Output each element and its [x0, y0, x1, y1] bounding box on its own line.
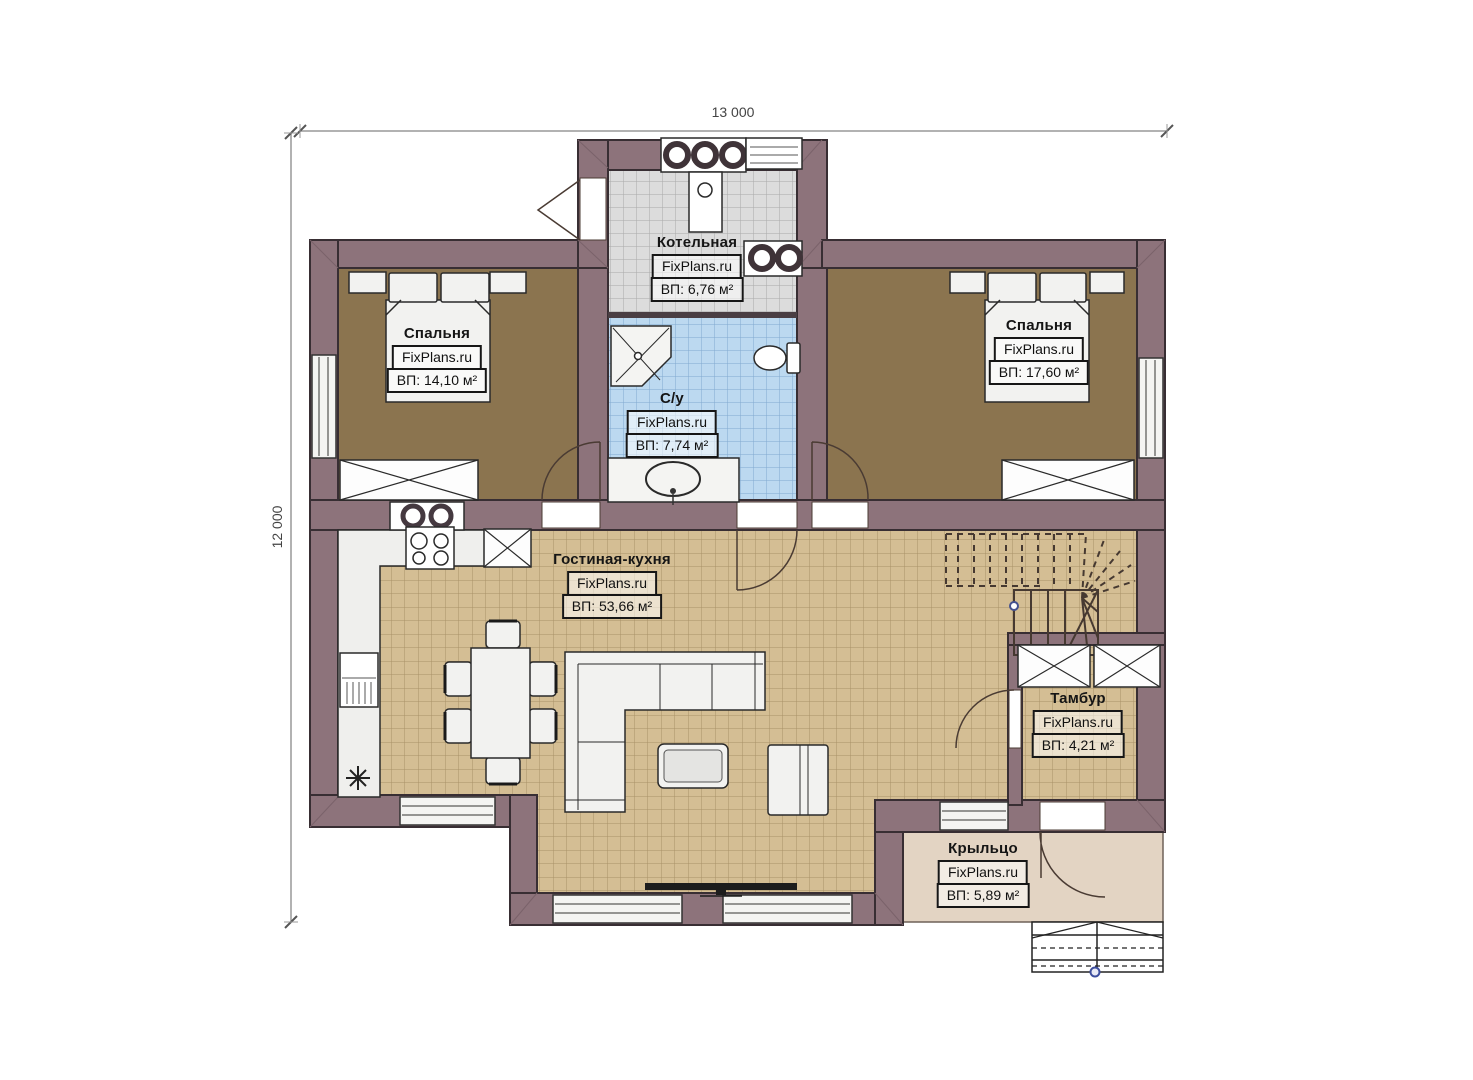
nightstand: [1090, 272, 1124, 293]
sink: [390, 502, 464, 530]
room-area: ВП: 53,66 м²: [562, 594, 662, 619]
room-name: Спальня: [404, 325, 470, 342]
nightstand: [950, 272, 985, 293]
room-area: ВП: 5,89 м²: [937, 883, 1030, 908]
room-name: Котельная: [657, 234, 737, 251]
room-name: Спальня: [1006, 317, 1072, 334]
room-area: ВП: 14,10 м²: [387, 368, 487, 393]
window-living-left: [553, 895, 682, 923]
brand-badge: FixPlans.ru: [392, 345, 482, 370]
room-label-porch: Крыльцо FixPlans.ru ВП: 5,89 м²: [937, 840, 1030, 908]
chair: [445, 662, 472, 696]
room-area: ВП: 17,60 м²: [989, 360, 1089, 385]
step-node: [1091, 968, 1100, 977]
door-boiler-exterior: [538, 180, 580, 240]
room-area: ВП: 4,21 м²: [1032, 733, 1125, 758]
armchair: [768, 745, 828, 815]
wall-left: [310, 240, 338, 827]
opening-entry: [1040, 802, 1105, 830]
room-label-bedroom-right: Спальня FixPlans.ru ВП: 17,60 м²: [989, 317, 1089, 385]
closet: [1018, 645, 1160, 687]
brand-badge: FixPlans.ru: [627, 410, 717, 435]
room-area: ВП: 7,74 м²: [626, 433, 719, 458]
room-label-living: Гостиная-кухня FixPlans.ru ВП: 53,66 м²: [553, 551, 671, 619]
brand-badge: FixPlans.ru: [1033, 710, 1123, 735]
vanity-sink: [608, 458, 739, 505]
wardrobe: [340, 460, 478, 500]
boiler-unit: [689, 172, 722, 232]
counter: [746, 138, 802, 169]
toilet: [754, 343, 800, 373]
opening-boiler-exterior: [580, 178, 606, 240]
coffee-table: [658, 744, 728, 788]
window-bedroom-right: [1139, 358, 1163, 458]
dining-table: [471, 648, 530, 758]
room-label-boiler: Котельная FixPlans.ru ВП: 6,76 м²: [651, 234, 744, 302]
stove: [406, 527, 454, 569]
window-bedroom-left: [312, 355, 336, 458]
brand-badge: FixPlans.ru: [994, 337, 1084, 362]
dimension-height-label: 12 000: [269, 506, 285, 549]
window-living-right: [723, 895, 852, 923]
opening-bedroom-right: [812, 502, 868, 528]
chair: [445, 709, 472, 743]
room-area: ВП: 6,76 м²: [651, 277, 744, 302]
room-name: С/у: [660, 390, 684, 407]
wall-top-right: [822, 240, 1165, 268]
opening-vestibule: [1009, 690, 1021, 748]
wall-bedroom1-bathroom: [578, 268, 608, 500]
freezer: [340, 653, 378, 707]
room-label-bedroom-left: Спальня FixPlans.ru ВП: 14,10 м²: [387, 325, 487, 393]
chair: [486, 621, 520, 648]
chair: [529, 709, 556, 743]
room-name: Крыльцо: [948, 840, 1018, 857]
wall-right: [1137, 240, 1165, 832]
opening-bathroom: [737, 502, 797, 528]
wall-boiler-partition: [608, 312, 797, 318]
washing-machine: [744, 241, 802, 276]
window-porch-side: [940, 802, 1008, 830]
room-label-vestibule: Тамбур FixPlans.ru ВП: 4,21 м²: [1032, 690, 1125, 758]
porch-steps: [1032, 922, 1163, 977]
brand-badge: FixPlans.ru: [938, 860, 1028, 885]
nightstand: [490, 272, 526, 293]
nightstand: [349, 272, 386, 293]
room-name: Тамбур: [1050, 690, 1106, 707]
chair: [486, 757, 520, 784]
brand-badge: FixPlans.ru: [567, 571, 657, 596]
window-kitchen: [400, 797, 495, 825]
stove-burners: [661, 138, 746, 172]
brand-badge: FixPlans.ru: [652, 254, 742, 279]
dimension-width-label: 13 000: [712, 104, 755, 120]
opening-bedroom-left: [542, 502, 600, 528]
chair: [529, 662, 556, 696]
wall-top-left: [310, 240, 578, 268]
refrigerator: [484, 529, 531, 567]
stair-node: [1010, 602, 1018, 610]
floor-plan-drawing: [0, 0, 1473, 1080]
floor-plan: 13 000 12 000 Котельная FixPlans.ru ВП: …: [0, 0, 1473, 1080]
wardrobe: [1002, 460, 1134, 500]
room-name: Гостиная-кухня: [553, 551, 671, 568]
room-label-bathroom: С/у FixPlans.ru ВП: 7,74 м²: [626, 390, 719, 458]
